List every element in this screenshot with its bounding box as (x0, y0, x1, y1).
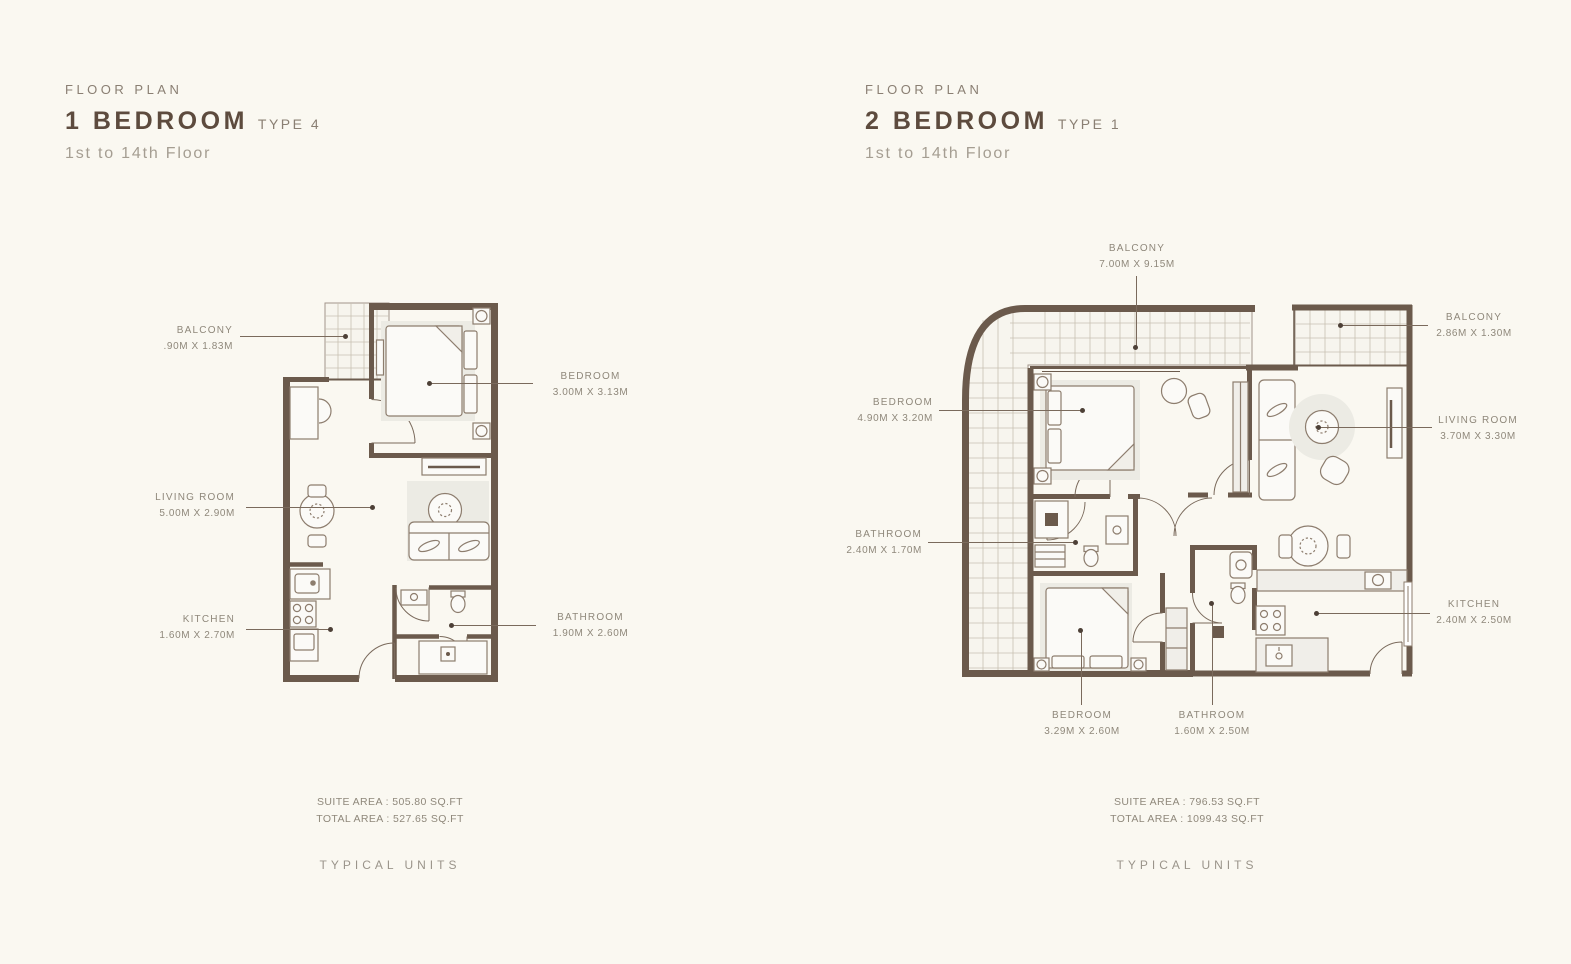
plan1-title-text: 1 BEDROOM (65, 107, 248, 135)
leader-dot (1078, 628, 1083, 633)
plan2-suite-area: SUITE AREA : 796.53 SQ.FT (1087, 797, 1287, 808)
leader-line (1342, 325, 1428, 326)
leader-line (1136, 276, 1137, 347)
plan1-typical-units: TYPICAL UNITS (290, 858, 490, 872)
plan2-title: 2 BEDROOMTYPE 1 (865, 107, 1121, 136)
plan1-areas: SUITE AREA : 505.80 SQ.FT TOTAL AREA : 5… (290, 797, 490, 824)
leader-line (240, 336, 346, 337)
plan1-floors: 1st to 14th Floor (65, 145, 321, 163)
leader-dot (1133, 345, 1138, 350)
leader-dot (1316, 425, 1321, 430)
stove (290, 601, 316, 627)
plan2-total-area: TOTAL AREA : 1099.43 SQ.FT (1087, 814, 1287, 825)
label-balcony-right: BALCONY 2.86M X 1.30M (1428, 313, 1520, 339)
leader-dot (370, 505, 375, 510)
plan1-header: FLOOR PLAN 1 BEDROOMTYPE 4 1st to 14th F… (65, 82, 321, 163)
plan2-areas: SUITE AREA : 796.53 SQ.FT TOTAL AREA : 1… (1087, 797, 1287, 824)
vanity (1106, 516, 1128, 544)
dining-table (1288, 526, 1328, 566)
label-living-room: LIVING ROOM 3.70M X 3.30M (1432, 416, 1524, 442)
chair (308, 535, 326, 547)
leader-dot (1209, 601, 1214, 606)
tv-unit (1387, 388, 1402, 458)
furniture (290, 308, 490, 674)
floor-plan-drawing-1br (283, 295, 505, 690)
leader-line (246, 507, 372, 508)
shower (419, 641, 487, 674)
chair (1279, 535, 1292, 558)
leader-line (928, 542, 1075, 543)
chair (1337, 535, 1350, 558)
label-bathroom1: BATHROOM 2.40M X 1.70M (812, 530, 922, 556)
label-kitchen: KITCHEN 1.60M X 2.70M (115, 615, 235, 641)
leader-dot (427, 381, 432, 386)
label-balcony-main: BALCONY 7.00M X 9.15M (1077, 244, 1197, 270)
label-living-room: LIVING ROOM 5.00M X 2.90M (115, 493, 235, 519)
leader-dot (1080, 408, 1085, 413)
bathroom-sink (401, 590, 427, 605)
plan1-title: 1 BEDROOMTYPE 4 (65, 107, 321, 136)
label-bathroom2: BATHROOM 1.60M X 2.50M (1153, 711, 1271, 737)
leader-line (452, 625, 536, 626)
furniture (1034, 374, 1412, 672)
leader-dot (1073, 540, 1078, 545)
label-kitchen: KITCHEN 2.40M X 2.50M (1430, 600, 1518, 626)
side-table (1162, 379, 1187, 404)
hall-closet (1166, 608, 1187, 670)
plan2-typical-units: TYPICAL UNITS (1087, 858, 1287, 872)
leader-dot (1314, 611, 1319, 616)
label-bedroom: BEDROOM 3.00M X 3.13M (533, 372, 648, 398)
leader-dot (1338, 323, 1343, 328)
plan1-eyebrow: FLOOR PLAN (65, 82, 321, 97)
leader-line (1212, 604, 1213, 705)
leader-dot (449, 623, 454, 628)
plan2-title-text: 2 BEDROOM (865, 107, 1048, 135)
floor-plan-drawing-2br (950, 290, 1440, 700)
plan1-type: TYPE 4 (258, 116, 321, 132)
desk-chair (319, 399, 331, 423)
wardrobe (377, 340, 384, 375)
plan2-eyebrow: FLOOR PLAN (865, 82, 1121, 97)
leader-line (1320, 427, 1432, 428)
chair (1186, 392, 1211, 421)
label-bathroom: BATHROOM 1.90M X 2.60M (533, 613, 648, 639)
plan2-floors: 1st to 14th Floor (865, 145, 1121, 163)
leader-line (1081, 631, 1082, 705)
label-bedroom1: BEDROOM 4.90M X 3.20M (823, 398, 933, 424)
chair (308, 485, 326, 497)
floor-plan-page: FLOOR PLAN 1 BEDROOMTYPE 4 1st to 14th F… (0, 0, 1571, 964)
label-balcony: BALCONY .90M X 1.83M (115, 326, 233, 352)
dining-table (300, 494, 334, 528)
leader-dot (343, 334, 348, 339)
leader-line (939, 410, 1081, 411)
leader-dot (328, 627, 333, 632)
leader-line (430, 383, 533, 384)
label-bedroom2: BEDROOM 3.29M X 2.60M (1023, 711, 1141, 737)
bathroom2-sink (1230, 552, 1252, 578)
shelves (1035, 545, 1065, 567)
leader-line (246, 629, 330, 630)
plan2-type: TYPE 1 (1058, 116, 1121, 132)
leader-line (1318, 613, 1430, 614)
plan1-total-area: TOTAL AREA : 527.65 SQ.FT (290, 814, 490, 825)
desk (290, 387, 318, 439)
stove (1256, 606, 1285, 635)
plan1-suite-area: SUITE AREA : 505.80 SQ.FT (290, 797, 490, 808)
plan2-header: FLOOR PLAN 2 BEDROOMTYPE 1 1st to 14th F… (865, 82, 1121, 163)
